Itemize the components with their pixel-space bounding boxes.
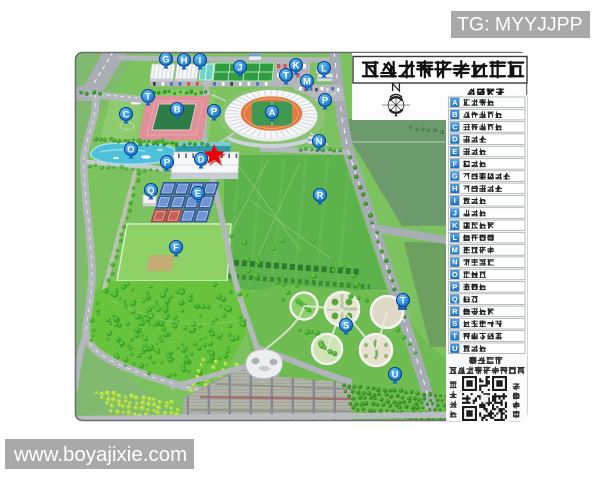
svg-text:U: U [392,369,399,380]
svg-text:M: M [452,245,458,254]
svg-text:I: I [454,196,456,205]
svg-text:L: L [453,233,458,242]
svg-text:T: T [453,332,458,341]
svg-text:E: E [195,188,201,199]
svg-text:C: C [452,122,458,131]
svg-text:L: L [321,63,327,74]
svg-text:R: R [452,307,458,316]
svg-text:P: P [452,282,457,291]
svg-text:B: B [174,104,181,115]
svg-text:G: G [452,172,458,181]
svg-text:N: N [452,258,457,267]
svg-text:A: A [269,107,276,118]
svg-text:B: B [452,110,458,119]
svg-text:www.boyajixie.com: www.boyajixie.com [13,443,187,466]
svg-text:P: P [211,106,218,117]
svg-text:T: T [283,70,289,81]
svg-text:G: G [162,54,169,65]
svg-text:K: K [452,221,458,230]
svg-text:T: T [145,91,151,102]
svg-text:F: F [453,159,458,168]
svg-text:J: J [453,209,457,218]
svg-text:O: O [127,144,134,155]
svg-text:M: M [303,76,311,87]
svg-text:R: R [317,190,324,201]
svg-text:F: F [173,242,179,253]
svg-text:T: T [400,295,406,306]
svg-text:J: J [237,62,242,73]
svg-text:TG: MYYJJPP: TG: MYYJJPP [457,14,583,36]
svg-text:D: D [198,154,205,165]
svg-text:E: E [452,147,457,156]
svg-text:P: P [322,95,329,106]
svg-text:H: H [181,55,188,66]
svg-text:K: K [293,60,300,71]
svg-text:P: P [164,157,171,168]
svg-text:N: N [316,136,323,147]
svg-text:Q: Q [147,185,154,196]
svg-text:C: C [123,109,130,120]
svg-text:A: A [452,98,458,107]
svg-text:O: O [452,270,458,279]
svg-text:I: I [199,55,202,66]
svg-text:U: U [452,344,457,353]
svg-text:S: S [452,319,457,328]
svg-text:S: S [343,320,349,331]
svg-text:Q: Q [452,295,458,304]
svg-text:D: D [452,135,458,144]
svg-text:H: H [452,184,457,193]
